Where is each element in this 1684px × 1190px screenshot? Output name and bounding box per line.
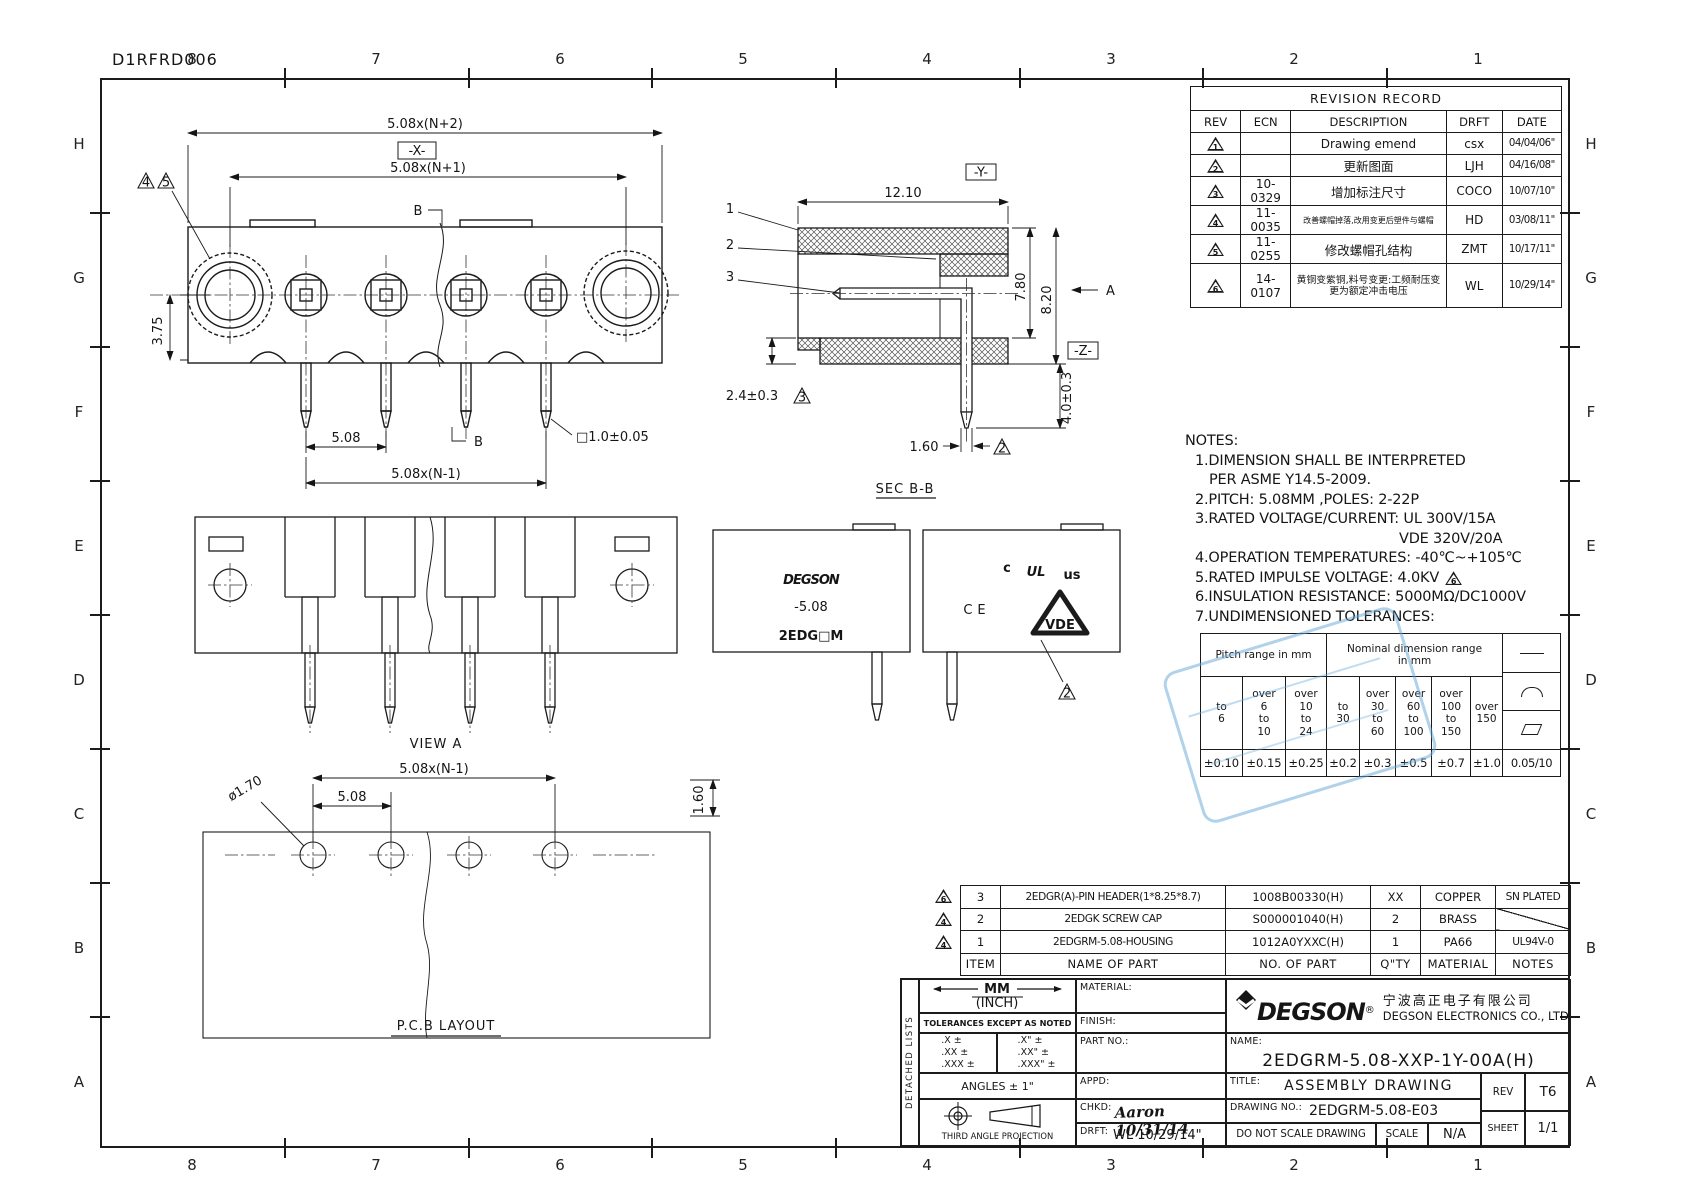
grid-label: G: [1576, 269, 1606, 289]
grid-label: H: [1576, 135, 1606, 155]
parallelogram-icon: [1521, 724, 1542, 735]
dim-pitch-n1: 5.08x(N+1): [390, 161, 466, 176]
datum-z: -Z-: [1074, 344, 1092, 359]
grid-label: G: [64, 269, 94, 289]
sheet-value-cell: 1/1: [1525, 1111, 1571, 1146]
bottom-view: VIEW A: [185, 505, 695, 760]
degson-logo: DEGSON ®: [1235, 986, 1375, 1026]
pcb-layout-view: 5.08x(N-1) 5.08 ø1.70 1.60 P.C.B LAYOUT: [195, 758, 730, 1053]
drawing-no-cell: DRAWING NO.: 2EDGRM-5.08-E03: [1226, 1099, 1481, 1123]
third-angle-projection-icon: [920, 1102, 1075, 1130]
revision-row: 1 Drawing emend csx 04/04/06": [1191, 133, 1562, 155]
detached-lists-strip: DETACHED LISTS: [901, 979, 919, 1146]
section-cut-label: B: [474, 435, 483, 450]
range-cell: over 10 to 24: [1286, 677, 1327, 750]
grid-label: E: [64, 537, 94, 557]
dim-40: 4.0±0.3: [1060, 372, 1075, 424]
note-line: 4.OPERATION TEMPERATURES: -40℃~+105℃: [1185, 549, 1585, 569]
terminal-slots: [285, 517, 575, 653]
finish-cell: FINISH:: [1076, 1013, 1226, 1033]
part-no-cell: PART NO.:: [1076, 1033, 1226, 1073]
drft-header: DRFT: [1446, 111, 1502, 133]
view-a-label: VIEW A: [410, 737, 463, 752]
tolerance-mm-cell: .X ± .XX ± .XXX ±: [919, 1033, 997, 1073]
revision-row: 6 14-0107 黄铜变紫铜,料号变更:工频耐压变更为额定冲击电压 WL 10…: [1191, 264, 1562, 308]
title-cell: TITLE: ASSEMBLY DRAWING: [1226, 1073, 1481, 1099]
dim-1210: 12.10: [884, 186, 921, 201]
datum-x: -X-: [409, 144, 426, 159]
grid-label: C: [1576, 805, 1606, 825]
ecn-header: ECN: [1241, 111, 1291, 133]
dim-pitch-n2: 5.08x(N+2): [387, 117, 463, 132]
scale-value-cell: N/A: [1428, 1123, 1481, 1146]
range-cell: to 30: [1327, 677, 1360, 750]
grid-label: 5: [728, 50, 758, 70]
grid-label: F: [1576, 403, 1606, 423]
break-line: [424, 832, 431, 1038]
tolerance-value: ±0.3: [1360, 750, 1396, 777]
grid-label: 6: [545, 1156, 575, 1176]
company-name-en: DEGSON ELECTRONICS CO., LTD: [1383, 1009, 1569, 1023]
front-view: 5.08x(N+2) -X- 5.08x(N+1) 3.75 B B 5.08 …: [110, 95, 700, 495]
marking-text: DEGSON -5.08 2EDG□M c UL us CE VDE 2: [779, 561, 1087, 702]
title-value: ASSEMBLY DRAWING: [1227, 1074, 1480, 1098]
mounting-holes: [300, 842, 568, 868]
centerlines: [225, 836, 655, 876]
section-view: 1 2 3 12.10 -Y- 7.80 8.20 A -Z- 2.4±0.3 …: [700, 160, 1130, 510]
dim-pin-square: □1.0±0.05: [576, 430, 649, 445]
grid-label: 2: [1279, 50, 1309, 70]
tolerance-value: ±0.15: [1243, 750, 1286, 777]
description-header: DESCRIPTION: [1291, 111, 1446, 133]
units-graphic: MM (INCH): [920, 980, 1075, 1012]
grid-label: 4: [912, 50, 942, 70]
drawing-no-value: 2EDGRM-5.08-E03: [1309, 1103, 1438, 1119]
range-cell: over 150: [1471, 677, 1503, 750]
pcb-dimensions: [261, 778, 720, 1036]
grid-label: 1: [1463, 50, 1493, 70]
rev-label-cell: REV: [1481, 1073, 1525, 1111]
bom-header-row: ITEM NAME OF PART NO. OF PART Q"TY MATER…: [961, 953, 1571, 976]
revision-flag-icon: 1: [1207, 137, 1224, 151]
revision-flag-icon: 3: [1207, 184, 1224, 198]
break-line: [427, 517, 433, 653]
svg-text:5: 5: [162, 176, 170, 191]
grid-label: H: [64, 135, 94, 155]
degson-diamond-icon: [1235, 986, 1257, 1026]
range-cell: over 60 to 100: [1396, 677, 1432, 750]
view-arrow-label: A: [1106, 284, 1115, 299]
tolerance-value: ±0.5: [1396, 750, 1432, 777]
revision-table-title: REVISION RECORD: [1191, 87, 1562, 111]
pcb-outline: [203, 832, 710, 1038]
revision-flag-icon: 4: [935, 935, 952, 949]
tolerance-value: ±0.10: [1201, 750, 1243, 777]
side-views: DEGSON -5.08 2EDG□M c UL us CE VDE 2: [705, 512, 1130, 742]
revision-flag-icon: 2: [1207, 159, 1224, 173]
range-cell: over 6 to 10: [1243, 677, 1286, 750]
revision-row: 2 更新图面 LJH 04/16/08": [1191, 155, 1562, 177]
straight-line-icon: [1520, 653, 1544, 654]
grid-label: C: [64, 805, 94, 825]
date-header: DATE: [1502, 111, 1561, 133]
tolerance-table: Pitch range in mm Nominal dimension rang…: [1200, 633, 1561, 777]
grid-label: 8: [177, 1156, 207, 1176]
svg-text:UL: UL: [1027, 565, 1046, 580]
bom-flags: 6 4 4: [935, 885, 955, 958]
dim-pitch-nm1: 5.08x(N-1): [391, 467, 460, 482]
note-line: 6.INSULATION RESISTANCE: 5000MΩ/DC1000V: [1185, 588, 1585, 608]
note-line: 2.PITCH: 5.08MM ,POLES: 2-22P: [1185, 491, 1585, 511]
rev-value-cell: T6: [1525, 1073, 1571, 1111]
bom-row: 2 2EDGK SCREW CAP S000001040(H) 2 BRASS: [961, 908, 1571, 931]
revision-row: 5 11-0255 修改螺帽孔结构 ZMT 10/17/11": [1191, 235, 1562, 264]
dim-160: 1.60: [910, 440, 939, 455]
range-cell: over 100 to 150: [1432, 677, 1471, 750]
section-label: SEC B-B: [876, 482, 935, 497]
note-line: 1.DIMENSION SHALL BE INTERPRETED: [1185, 452, 1585, 472]
section-text: 1 2 3 12.10 -Y- 7.80 8.20 A -Z- 2.4±0.3 …: [726, 166, 1115, 498]
housing-outline: [188, 220, 668, 427]
note-line: 3.RATED VOLTAGE/CURRENT: UL 300V/15A: [1185, 510, 1585, 530]
grid-label: F: [64, 403, 94, 423]
tolerances-note-cell: TOLERANCES EXCEPT AS NOTED: [919, 1013, 1076, 1033]
centerlines: [150, 243, 682, 439]
range-cell: over 30 to 60: [1360, 677, 1396, 750]
grid-label: B: [64, 939, 94, 959]
svg-text:2: 2: [1063, 687, 1071, 702]
notes-block: NOTES: 1.DIMENSION SHALL BE INTERPRETED …: [1185, 432, 1585, 627]
pcb-label: P.C.B LAYOUT: [397, 1019, 496, 1034]
revision-flag-icon: 4: [935, 912, 952, 926]
note-line: VDE 320V/20A: [1185, 530, 1585, 550]
view-a-outline: [195, 517, 677, 723]
svg-text:(INCH): (INCH): [976, 996, 1019, 1011]
centerlines: [208, 563, 654, 733]
dim-780: 7.80: [1014, 273, 1029, 302]
grid-label: 3: [1096, 1156, 1126, 1176]
section-cut-label: B: [414, 204, 423, 219]
revision-flag-icon: 6: [1207, 279, 1224, 293]
svg-text:us: us: [1064, 568, 1081, 583]
bom-notes-blank: [1496, 908, 1571, 931]
sheet-label-cell: SHEET: [1481, 1111, 1525, 1146]
bom-table: 3 2EDGR(A)-PIN HEADER(1*8.25*8.7) 1008B0…: [960, 885, 1571, 976]
pcb-text: 5.08x(N-1) 5.08 ø1.70 1.60 P.C.B LAYOUT: [226, 762, 707, 1034]
ul-mark: c UL us: [1003, 561, 1081, 583]
grid-label: 5: [728, 1156, 758, 1176]
scale-label-cell: SCALE: [1376, 1123, 1428, 1146]
revision-flag-icon: 4: [1207, 213, 1224, 227]
appd-cell: APPD:: [1076, 1073, 1226, 1099]
solder-pins: [301, 363, 551, 427]
note-line: 5.RATED IMPULSE VOLTAGE: 4.0KV 6: [1185, 569, 1585, 589]
svg-text:MM: MM: [984, 982, 1010, 997]
tolerance-value: ±0.25: [1286, 750, 1327, 777]
revision-flag-icon: 6: [1445, 571, 1462, 585]
part-name-cell: NAME: 2EDGRM-5.08-XXP-1Y-00A(H): [1226, 1033, 1571, 1073]
dim-375: 3.75: [151, 317, 166, 346]
units-cell: MM (INCH): [919, 979, 1076, 1013]
bom-row: 1 2EDGRM-5.08-HOUSING 1012A0YXXC(H) 1 PA…: [961, 931, 1571, 954]
dim-508: 5.08: [332, 431, 361, 446]
note-line: 7.UNDIMENSIONED TOLERANCES:: [1185, 608, 1585, 628]
angles-cell: ANGLES ± 1": [919, 1073, 1076, 1099]
grid-label: 7: [361, 1156, 391, 1176]
vde-mark: VDE: [1033, 592, 1087, 633]
do-not-scale-cell: DO NOT SCALE DRAWING: [1226, 1123, 1376, 1146]
material-cell: MATERIAL:: [1076, 979, 1226, 1013]
title-block: DETACHED LISTS MM (INCH) TOLERANCES EXCE…: [900, 978, 1570, 1148]
rev-header: REV: [1191, 111, 1241, 133]
dim-24: 2.4±0.3: [726, 389, 778, 404]
tolerance-value: ±0.7: [1432, 750, 1471, 777]
tolerance-inch-cell: .X" ± .XX" ± .XXX" ±: [997, 1033, 1076, 1073]
revision-row: 4 11-0035 改善螺帽掉落,改用变更后塑件与螺帽 HD 03/08/11": [1191, 206, 1562, 235]
revision-flag-icon: 6: [935, 889, 952, 903]
pitch-range-header: Pitch range in mm: [1201, 634, 1327, 677]
drawing-sheet: D1RFRD006 8 7 6 5 4 3 2 1 8 7 6 5 4 3 2 …: [0, 0, 1684, 1190]
revision-flag-icon: 5: [1207, 242, 1224, 256]
dim-508: 5.08: [338, 790, 367, 805]
tolerance-value: 0.05/10: [1503, 750, 1561, 777]
revision-flag-icon: 2: [1059, 684, 1075, 702]
bom-row: 3 2EDGR(A)-PIN HEADER(1*8.25*8.7) 1008B0…: [961, 886, 1571, 909]
tolerance-value: ±0.2: [1327, 750, 1360, 777]
chkd-cell: CHKD: Aaron 10/31/14: [1076, 1099, 1226, 1123]
pitch-marking: -5.08: [794, 600, 828, 615]
front-dim-text: 5.08x(N+2) -X- 5.08x(N+1) 3.75 B B 5.08 …: [138, 117, 649, 482]
tolerance-symbols: [1503, 634, 1561, 750]
model-marking: 2EDG□M: [779, 629, 844, 644]
ce-mark: CE: [963, 603, 990, 618]
grid-label: D: [1576, 671, 1606, 691]
drft-cell: DRFT: WL 10/29/14": [1076, 1123, 1226, 1146]
range-cell: to 6: [1201, 677, 1243, 750]
company-name-cn: 宁波高正电子有限公司: [1383, 990, 1569, 1009]
revision-flag-icon: 4 5: [138, 173, 174, 191]
grid-label: 4: [912, 1156, 942, 1176]
grid-label: 2: [1279, 1156, 1309, 1176]
callout-2: 2: [726, 238, 734, 253]
grid-label: B: [1576, 939, 1606, 959]
revision-record-table: REVISION RECORD REV ECN DESCRIPTION DRFT…: [1190, 86, 1562, 308]
svg-text:VDE: VDE: [1045, 618, 1075, 633]
revision-row: 3 10-0329 增加标注尺寸 COCO 10/07/10": [1191, 177, 1562, 206]
nominal-range-header: Nominal dimension range in mm: [1327, 634, 1503, 677]
datum-y: -Y-: [974, 166, 989, 181]
grid-label: A: [1576, 1073, 1606, 1093]
dim-hole-dia: ø1.70: [226, 773, 265, 804]
grid-label: A: [64, 1073, 94, 1093]
drft-value: WL 10/29/14": [1113, 1128, 1202, 1143]
callout-1: 1: [726, 202, 734, 217]
grid-label: 3: [1096, 50, 1126, 70]
callout-3: 3: [726, 270, 734, 285]
grid-label: 6: [545, 50, 575, 70]
dim-160: 1.60: [692, 786, 707, 815]
grid-label: D: [64, 671, 94, 691]
grid-label: 8: [177, 50, 207, 70]
svg-text:c: c: [1003, 561, 1011, 576]
projection-cell: THIRD ANGLE PROJECTION: [919, 1099, 1076, 1146]
svg-text:4: 4: [142, 176, 150, 191]
notes-title: NOTES:: [1185, 432, 1585, 452]
section-body: [798, 228, 1008, 428]
note-line: PER ASME Y14.5-2009.: [1185, 471, 1585, 491]
svg-text:2: 2: [998, 442, 1006, 457]
brand-marking: DEGSON: [783, 573, 840, 588]
grid-label: 1: [1463, 1156, 1493, 1176]
dim-820: 8.20: [1040, 286, 1055, 315]
grid-label: 7: [361, 50, 391, 70]
dim-pitch-nm1: 5.08x(N-1): [399, 762, 468, 777]
solder-pins: [872, 652, 957, 720]
company-cell: DEGSON ® 宁波高正电子有限公司 DEGSON ELECTRONICS C…: [1226, 979, 1571, 1033]
svg-text:3: 3: [798, 391, 806, 406]
arc-icon: [1521, 687, 1543, 697]
solder-pins: [305, 653, 555, 723]
tolerance-value: ±1.0: [1471, 750, 1503, 777]
